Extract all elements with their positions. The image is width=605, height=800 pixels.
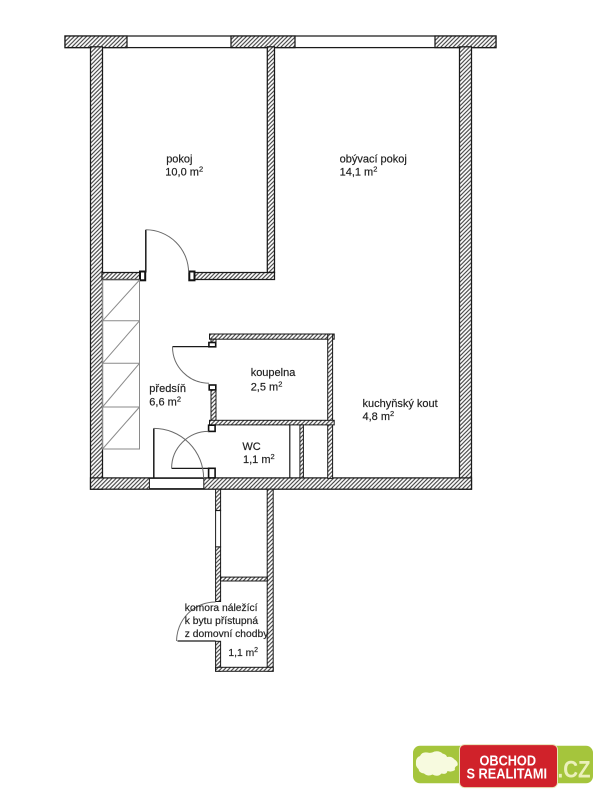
svg-text:4,8 m2: 4,8 m2 xyxy=(363,409,395,423)
svg-text:z domovní chodby: z domovní chodby xyxy=(185,629,269,640)
svg-text:komora náležící: komora náležící xyxy=(185,603,258,614)
svg-text:předsíň: předsíň xyxy=(149,383,186,395)
svg-text:k bytu přístupná: k bytu přístupná xyxy=(185,616,259,627)
svg-text:kuchyňský kout: kuchyňský kout xyxy=(363,398,438,410)
svg-text:14,1 m2: 14,1 m2 xyxy=(340,165,378,179)
svg-text:koupelna: koupelna xyxy=(251,367,297,379)
svg-text:S REALITAMI: S REALITAMI xyxy=(467,766,548,783)
svg-text:2,5 m2: 2,5 m2 xyxy=(251,380,283,394)
svg-text:pokoj: pokoj xyxy=(166,154,192,166)
svg-text:WC: WC xyxy=(242,441,260,453)
svg-text:1,1 m2: 1,1 m2 xyxy=(243,452,275,466)
svg-text:10,0 m2: 10,0 m2 xyxy=(165,165,203,179)
svg-text:.CZ: .CZ xyxy=(558,757,591,784)
svg-text:1,1 m2: 1,1 m2 xyxy=(228,647,258,659)
svg-text:6,6 m2: 6,6 m2 xyxy=(149,395,181,409)
